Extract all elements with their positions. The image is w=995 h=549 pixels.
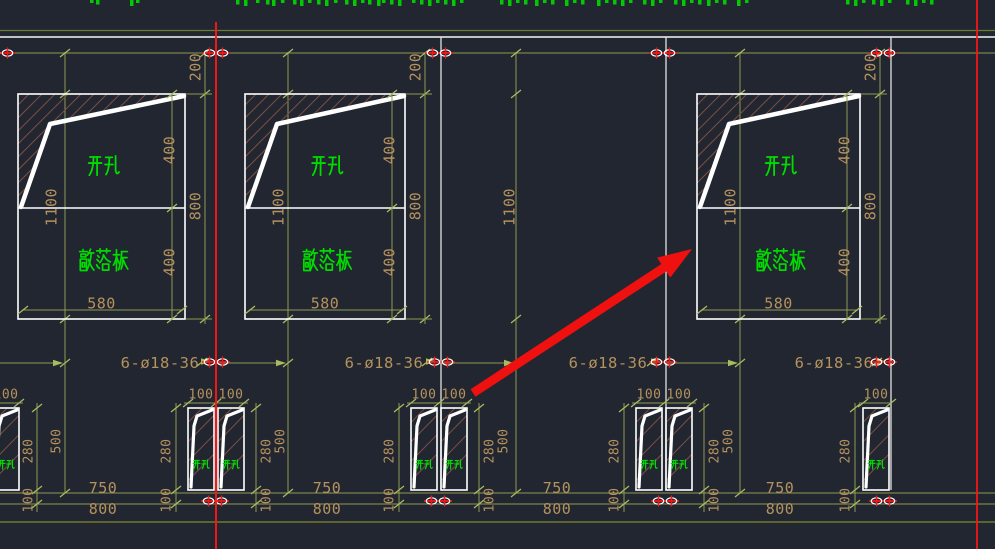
dim-100-bottom[interactable]: 100	[608, 488, 623, 513]
top-edge-text-fragment	[428, 0, 432, 6]
dim-500[interactable]: 500	[50, 429, 65, 454]
top-edge-text-fragment	[368, 0, 372, 5]
top-edge-text-fragment	[543, 0, 547, 3]
dim-100-bottom[interactable]: 100	[160, 488, 175, 513]
dim-800[interactable]: 800	[861, 192, 879, 221]
top-edge-text-fragment	[334, 0, 338, 3]
top-edge-text-fragment	[846, 0, 850, 5]
dim-200[interactable]: 200	[406, 53, 424, 82]
dim-750[interactable]: 750	[543, 479, 572, 497]
cad-viewport[interactable]: 4004001100800200580400400110080020058040…	[0, 0, 995, 549]
top-edge-text-fragment	[605, 0, 609, 3]
top-edge-text-fragment	[888, 0, 892, 3]
dim-100-bottom[interactable]: 100	[483, 488, 498, 513]
dim-800[interactable]: 800	[406, 192, 424, 221]
dim-100-top[interactable]: 100	[0, 388, 18, 403]
top-edge-text-fragment	[500, 0, 504, 5]
top-edge-text-fragment	[300, 0, 304, 6]
top-edge-text-fragment	[345, 0, 349, 5]
top-edge-text-fragment	[398, 0, 402, 6]
dim-400-upper[interactable]: 400	[380, 136, 398, 165]
top-edge-text-fragment	[872, 0, 876, 5]
rebar-count-label[interactable]: 6-ø18-36	[569, 354, 648, 372]
dim-800[interactable]: 800	[89, 500, 118, 518]
dim-400-upper[interactable]: 400	[160, 136, 178, 165]
rebar-count-label[interactable]: 6-ø18-36	[795, 354, 874, 372]
top-edge-text-fragment	[745, 0, 749, 3]
top-edge-text-fragment	[613, 0, 617, 5]
top-edge-text-fragment	[651, 0, 655, 6]
dim-800[interactable]: 800	[313, 500, 342, 518]
dim-1100[interactable]: 1100	[42, 188, 60, 226]
dim-200[interactable]: 200	[186, 53, 204, 82]
dim-580[interactable]: 580	[311, 294, 340, 312]
dim-280[interactable]: 280	[260, 439, 275, 464]
top-edge-text-fragment	[715, 0, 719, 3]
cjk-stroke	[97, 259, 99, 261]
top-edge-text-fragment	[452, 0, 456, 6]
top-edge-text-fragment	[535, 0, 539, 6]
cjk-stroke	[774, 259, 776, 261]
dim-100-top[interactable]: 100	[667, 388, 692, 403]
top-edge-text-fragment	[621, 0, 625, 6]
top-edge-text-fragment	[723, 0, 727, 5]
top-edge-text-fragment	[96, 0, 100, 5]
top-edge-text-fragment	[674, 0, 678, 5]
cjk-stroke	[98, 256, 100, 258]
dim-750[interactable]: 750	[766, 479, 795, 497]
top-edge-text-fragment	[353, 0, 357, 6]
dim-280[interactable]: 280	[839, 439, 854, 464]
dim-500[interactable]: 500	[722, 429, 737, 454]
rebar-count-label[interactable]: 6-ø18-36	[121, 354, 200, 372]
top-edge-text-fragment	[854, 0, 858, 6]
top-edge-text-fragment	[508, 0, 512, 6]
cjk-stroke	[321, 256, 323, 258]
top-edge-text-fragment	[256, 0, 260, 3]
top-edge-text-fragment	[412, 0, 416, 3]
dim-800[interactable]: 800	[766, 500, 795, 518]
dim-100-bottom[interactable]: 100	[708, 488, 723, 513]
top-edge-text-fragment	[922, 0, 926, 3]
top-edge-text-fragment	[707, 0, 711, 6]
dim-580[interactable]: 580	[764, 294, 793, 312]
top-edge-text-fragment	[272, 0, 276, 6]
top-edge-text-fragment	[436, 0, 440, 3]
dim-280[interactable]: 280	[708, 439, 723, 464]
top-edge-text-fragment	[90, 0, 94, 3]
dim-100-bottom[interactable]: 100	[839, 488, 854, 513]
top-edge-text-fragment	[629, 0, 633, 3]
top-edge-text-fragment	[244, 0, 248, 6]
dim-100-top[interactable]: 100	[219, 388, 244, 403]
dim-280[interactable]: 280	[160, 439, 175, 464]
dim-100-bottom[interactable]: 100	[260, 488, 275, 513]
dim-580[interactable]: 580	[87, 294, 116, 312]
top-edge-text-fragment	[581, 0, 585, 5]
top-edge-text-fragment	[293, 0, 297, 5]
dim-800[interactable]: 800	[543, 500, 572, 518]
top-edge-text-fragment	[444, 0, 448, 5]
top-edge-text-fragment	[659, 0, 663, 3]
dim-400-lower[interactable]: 400	[835, 248, 853, 277]
top-edge-text-fragment	[236, 0, 240, 5]
top-edge-text-fragment	[880, 0, 884, 6]
top-edge-text-fragment	[130, 0, 134, 6]
top-edge-text-fragment	[460, 0, 464, 3]
dim-500[interactable]: 500	[497, 429, 512, 454]
dim-100-bottom[interactable]: 100	[22, 488, 37, 513]
top-edge-text-fragment	[906, 0, 910, 5]
dim-1100[interactable]: 1100	[269, 188, 287, 226]
dim-280[interactable]: 280	[608, 439, 623, 464]
dim-750[interactable]: 750	[89, 479, 118, 497]
top-edge-text-fragment	[136, 0, 140, 3]
top-edge-text-fragment	[325, 0, 329, 6]
top-edge-text-fragment	[862, 0, 866, 3]
top-edge-text-fragment	[597, 0, 601, 6]
dim-100-top[interactable]: 100	[442, 388, 467, 403]
dim-500[interactable]: 500	[274, 429, 289, 454]
top-edge-text-fragment	[266, 0, 270, 5]
top-edge-text-fragment	[573, 0, 577, 3]
dim-280[interactable]: 280	[483, 439, 498, 464]
dim-280[interactable]: 280	[383, 439, 398, 464]
top-edge-text-fragment	[308, 0, 312, 3]
top-edge-text-fragment	[390, 0, 394, 5]
cjk-stroke	[320, 259, 322, 261]
top-edge-text-fragment	[914, 0, 918, 6]
top-edge-text-fragment	[565, 0, 569, 6]
top-edge-text-fragment	[516, 0, 520, 3]
top-edge-text-fragment	[690, 0, 694, 3]
top-edge-text-fragment	[317, 0, 321, 5]
cjk-stroke	[775, 256, 777, 258]
top-edge-text-fragment	[643, 0, 647, 5]
dim-280[interactable]: 280	[22, 439, 37, 464]
dim-400-lower[interactable]: 400	[160, 248, 178, 277]
dim-1100-middle[interactable]: 1100	[500, 188, 518, 226]
top-edge-text-fragment	[281, 0, 285, 3]
top-edge-text-fragment	[737, 0, 741, 6]
cad-canvas[interactable]: 4004001100800200580400400110080020058040…	[0, 0, 995, 549]
top-edge-text-fragment	[524, 0, 528, 5]
top-edge-text-fragment	[420, 0, 424, 5]
top-edge-text-fragment	[551, 0, 555, 5]
dim-800[interactable]: 800	[186, 192, 204, 221]
top-edge-text-fragment	[361, 0, 365, 3]
rebar-count-label[interactable]: 6-ø18-36	[345, 354, 424, 372]
dim-400-lower[interactable]: 400	[380, 248, 398, 277]
dim-1100[interactable]: 1100	[721, 188, 739, 226]
top-edge-text-fragment	[682, 0, 686, 6]
dim-400-upper[interactable]: 400	[835, 136, 853, 165]
dim-750[interactable]: 750	[313, 479, 342, 497]
top-edge-text-fragment	[930, 0, 934, 5]
top-edge-text-fragment	[698, 0, 702, 5]
dim-100-bottom[interactable]: 100	[383, 488, 398, 513]
top-edge-text-fragment	[377, 0, 381, 6]
top-edge-text-fragment	[382, 0, 386, 3]
